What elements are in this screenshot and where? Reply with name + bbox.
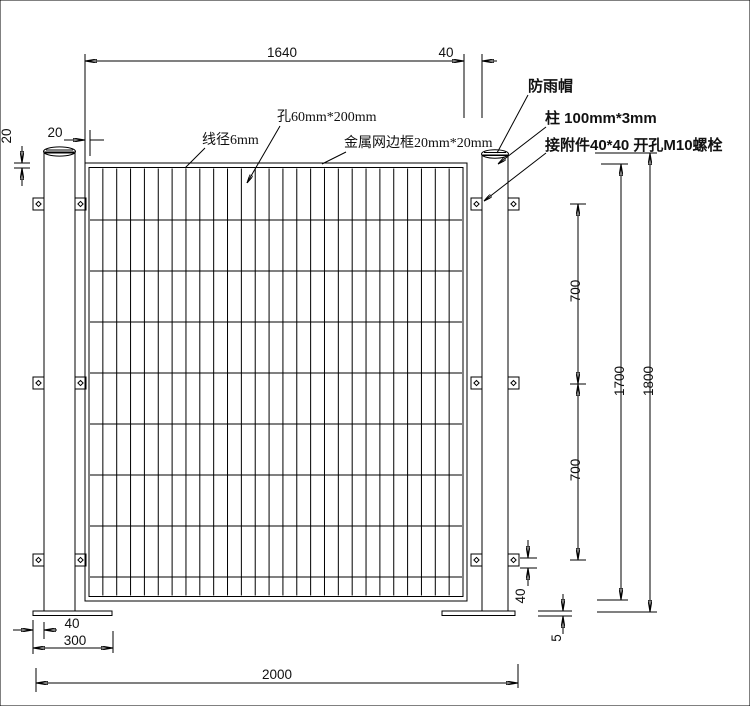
mount-bracket [33, 554, 44, 566]
dim-plate-width: 300 [33, 631, 113, 653]
panel-outer-frame [85, 163, 467, 601]
bolt-mark [36, 201, 41, 206]
dim-frame-height: 20 [0, 128, 30, 186]
dim-bracket-spacing-upper: 700 [568, 204, 586, 384]
right-rain-cap [482, 150, 509, 158]
bolt-mark [474, 201, 479, 206]
dim-label-5: 5 [549, 634, 564, 642]
mount-bracket [508, 198, 519, 210]
dim-label-700-upper: 700 [568, 280, 583, 303]
mount-bracket [33, 377, 44, 389]
mount-bracket [471, 554, 482, 566]
bolt-mark [78, 201, 83, 206]
mount-bracket [75, 377, 86, 389]
fence-technical-drawing: 1640 40 20 20 700 700 1700 [0, 0, 750, 706]
dim-label-1700: 1700 [612, 366, 627, 396]
drawing-canvas: 1640 40 20 20 700 700 1700 [0, 0, 750, 706]
mesh-panel [85, 163, 467, 601]
dim-label-300: 300 [64, 633, 87, 648]
dim-overall-width: 2000 [36, 664, 518, 692]
left-base-plate [33, 611, 112, 616]
mount-bracket [33, 198, 44, 210]
right-post-body [482, 155, 508, 611]
mesh-grid [90, 169, 462, 596]
background [0, 0, 750, 706]
dim-label-2000: 2000 [262, 667, 292, 682]
callout-label-wire-diameter: 线径6mm [202, 132, 259, 148]
mount-bracket [471, 377, 482, 389]
dim-label-1800: 1800 [641, 366, 656, 396]
dim-label-20-h: 20 [47, 125, 62, 140]
callout-label-bracket-spec: 接附件40*40 开孔M10螺栓 [545, 136, 723, 154]
mount-bracket [508, 554, 519, 566]
left-post [33, 147, 112, 616]
dim-label-40-bottom: 40 [64, 616, 79, 631]
bolt-mark [511, 380, 516, 385]
dim-label-20-v: 20 [0, 128, 14, 143]
bolt-mark [78, 557, 83, 562]
bolt-mark [474, 380, 479, 385]
bolt-mark [511, 557, 516, 562]
mount-brackets [33, 198, 519, 566]
mount-bracket [75, 198, 86, 210]
mount-bracket [75, 554, 86, 566]
callout-bracket-spec: 接附件40*40 开孔M10螺栓 [484, 136, 723, 201]
callout-mesh-frame: 金属网边框20mm*20mm [322, 135, 493, 164]
dim-panel-post-gap: 40 [438, 45, 497, 118]
dim-bracket-size: 40 [513, 540, 537, 604]
dim-bracket-spacing-lower: 700 [568, 384, 586, 560]
bolt-mark [36, 557, 41, 562]
mount-bracket [471, 198, 482, 210]
callout-label-post-spec: 柱 100mm*3mm [545, 109, 657, 127]
callout-label-mesh-hole: 孔60mm*200mm [277, 109, 377, 125]
right-base-plate [442, 611, 515, 616]
bolt-mark [474, 557, 479, 562]
bolt-mark [78, 380, 83, 385]
left-post-body [44, 152, 75, 611]
dim-plate-thickness: 5 [538, 594, 572, 642]
callout-label-mesh-frame: 金属网边框20mm*20mm [344, 135, 493, 151]
dim-mesh-height: 1700 [597, 164, 628, 600]
callout-label-rain-cap: 防雨帽 [528, 77, 573, 95]
dim-label-40-bracket: 40 [513, 588, 528, 603]
bolt-mark [511, 201, 516, 206]
dim-label-700-lower: 700 [568, 459, 583, 482]
mount-bracket [508, 377, 519, 389]
panel-inner-frame [89, 168, 463, 597]
bolt-mark [36, 380, 41, 385]
dim-label-40-top: 40 [438, 45, 453, 60]
dim-label-1640: 1640 [267, 45, 297, 60]
